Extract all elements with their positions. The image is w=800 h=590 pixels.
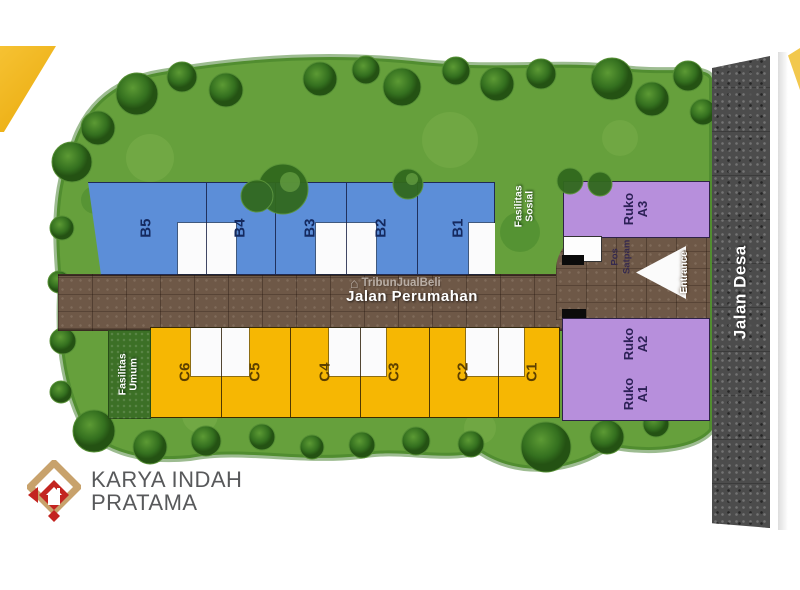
unit-b2-label: B2 [374, 219, 390, 238]
unit-b1-label: B1 [451, 219, 467, 238]
fasilitas-sosial-label: Fasilitas Sosial [498, 168, 552, 244]
home-icon: ⌂ [350, 276, 358, 290]
guard-post-label: Pos Satpam [600, 226, 642, 288]
unit-c4: C4 [290, 328, 360, 417]
unit-b4: B4 [206, 183, 275, 274]
block-row-c: C6 C5 C4 C3 C2 C1 [150, 327, 560, 418]
unit-c5: C5 [221, 328, 290, 417]
unit-b4-label: B4 [233, 219, 249, 238]
developer-logo: KARYA INDAH PRATAMA [27, 460, 242, 522]
road-jalan-desa-label: Jalan Desa [732, 245, 750, 339]
unit-c2-label: C2 [456, 363, 472, 382]
developer-name: KARYA INDAH PRATAMA [91, 468, 242, 514]
unit-b1: B1 [417, 183, 500, 274]
watermark: ⌂ TribunJualBeli [350, 276, 441, 290]
unit-c3-label: C3 [387, 363, 403, 382]
unit-b3: B3 [275, 183, 346, 274]
ruko-a3-label: Ruko A3 [622, 193, 650, 226]
fasilitas-umum-label: Fasilitas Umum [118, 353, 141, 395]
entrance-label: Entrance [676, 246, 694, 299]
unit-c6: C6 [151, 328, 221, 417]
unit-b3-label: B3 [303, 219, 319, 238]
unit-b5: B5 [87, 183, 206, 274]
ruko-a1-label: Ruko A1 [562, 368, 710, 420]
watermark-text: TribunJualBeli [361, 277, 440, 289]
developer-logo-icon [27, 460, 81, 522]
ruko-a2-label: Ruko A2 [562, 318, 710, 370]
fasilitas-umum-area: Fasilitas Umum [108, 330, 151, 419]
gate-pillar [562, 309, 586, 318]
unit-c4-label: C4 [317, 363, 333, 382]
site-plan: Jalan Desa B5 B4 B3 B2 B1 C6 C5 C4 C3 C2… [0, 0, 800, 590]
unit-c6-label: C6 [178, 363, 194, 382]
road-jalan-desa: Jalan Desa [712, 56, 770, 528]
unit-b5-label: B5 [138, 219, 154, 238]
unit-c1: C1 [498, 328, 566, 417]
block-row-b: B5 B4 B3 B2 B1 [86, 182, 495, 275]
gate-pillar [562, 255, 584, 265]
unit-c3: C3 [360, 328, 429, 417]
unit-b2: B2 [346, 183, 417, 274]
unit-c1-label: C1 [524, 363, 540, 382]
unit-c2: C2 [429, 328, 498, 417]
unit-c5-label: C5 [248, 363, 264, 382]
